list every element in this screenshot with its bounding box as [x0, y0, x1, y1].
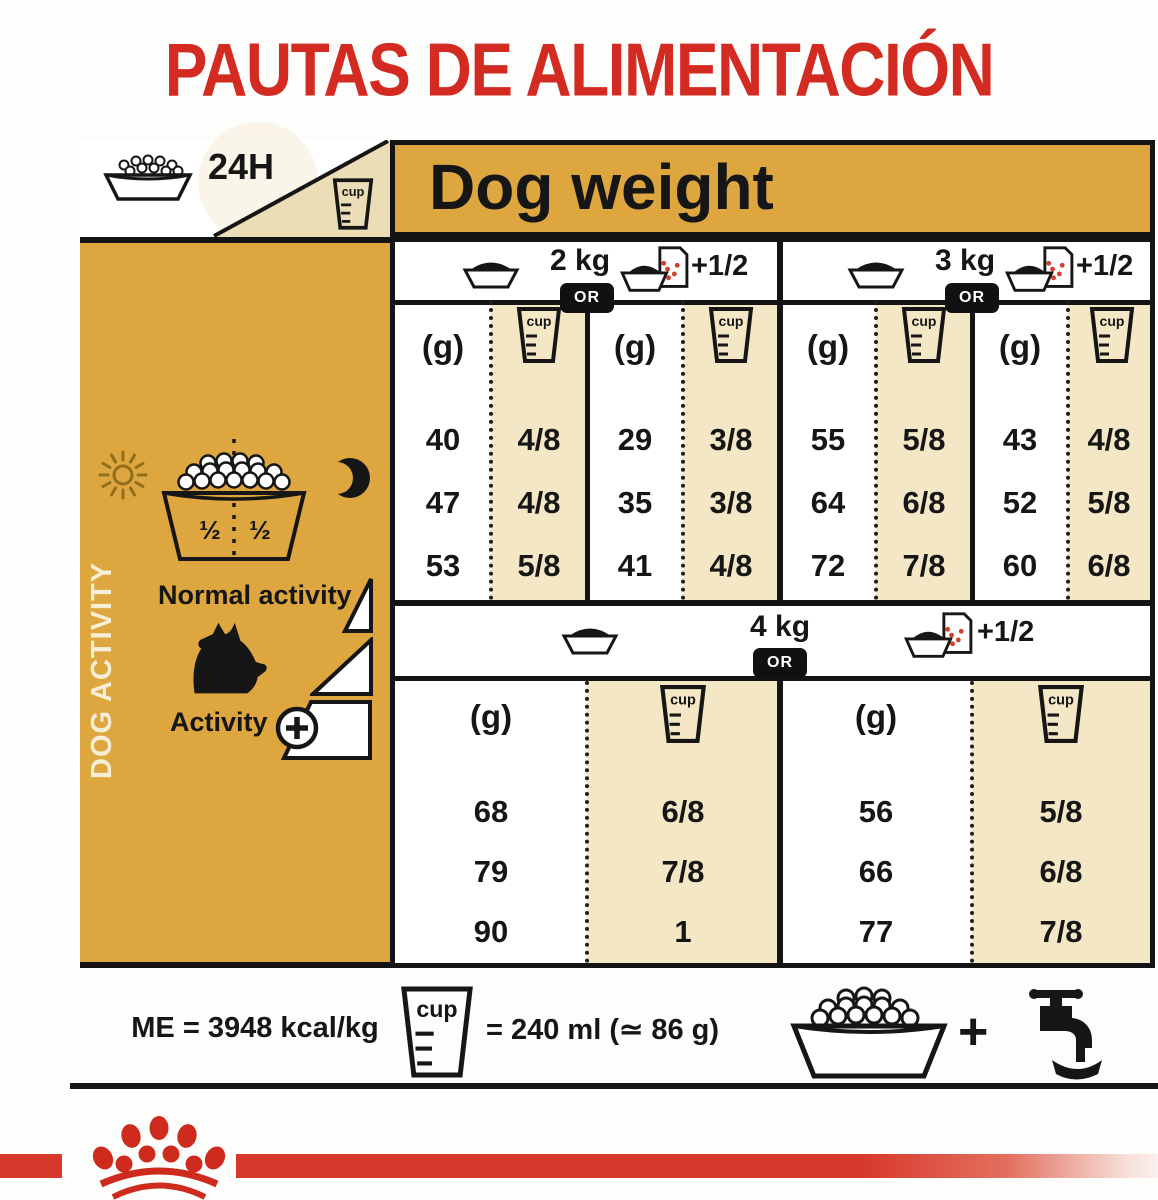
cup-label: cup: [342, 184, 365, 199]
bowl-icon: [560, 620, 620, 656]
value-cell: 5/8: [972, 794, 1150, 830]
cup-label: cup: [912, 313, 937, 329]
value-cell: 4/8: [491, 485, 587, 521]
kibble-bowl-icon: [94, 152, 202, 204]
activity-label: Activity: [170, 707, 268, 738]
cup-label: cup: [670, 693, 696, 709]
value-cell: 60: [972, 548, 1068, 584]
cup-icon-large: cup: [394, 984, 480, 1080]
value-cell: 53: [395, 548, 491, 584]
value-cell: 1: [587, 914, 779, 950]
grams-header: (g): [587, 328, 683, 366]
value-cell: 79: [395, 854, 587, 890]
cup-equivalence-label: = 240 ml (≃ 86 g): [486, 1012, 719, 1047]
cup-label: cup: [1048, 693, 1074, 709]
cup-icon: cup: [516, 306, 562, 364]
cup-icon: cup: [1037, 684, 1085, 744]
dog-weight-header: Dog weight: [390, 140, 1155, 237]
value-cell: 56: [780, 794, 972, 830]
me-kcal-label: ME = 3948 kcal/kg: [105, 1012, 405, 1045]
feeding-guide-page: PAUTAS DE ALIMENTACIÓN 24H cup Dog weigh…: [0, 0, 1158, 1200]
value-cell: 64: [780, 485, 876, 521]
value-cell: 72: [780, 548, 876, 584]
dog-activity-vertical-label: DOG ACTIVITY: [86, 558, 132, 782]
value-cell: 6/8: [587, 794, 779, 830]
value-cell: 5/8: [491, 548, 587, 584]
day-night-bowl-icon: ½ ½: [148, 435, 320, 575]
bowl-icon: [461, 254, 521, 290]
moon-icon: [328, 453, 370, 503]
value-cell: 5/8: [876, 422, 972, 458]
grams-header: (g): [780, 328, 876, 366]
value-cell: 5/8: [1068, 485, 1150, 521]
page-title: PAUTAS DE ALIMENTACIÓN: [0, 26, 1158, 113]
value-cell: 52: [972, 485, 1068, 521]
divider: [395, 300, 1150, 305]
normal-activity-label: Normal activity: [158, 580, 352, 611]
plus-circle-icon: [273, 704, 321, 752]
dog-silhouette-icon: [186, 614, 272, 704]
sun-icon: [96, 448, 150, 502]
cup-label: cup: [719, 313, 744, 329]
cup-label: cup: [1100, 313, 1125, 329]
value-cell: 77: [780, 914, 972, 950]
value-cell: 55: [780, 422, 876, 458]
value-cell: 90: [395, 914, 587, 950]
bowl-and-pouch-icon: [1004, 244, 1078, 300]
value-cell: 40: [395, 422, 491, 458]
cup-icon: cup: [1089, 306, 1135, 364]
bowl-and-pouch-icon: [619, 244, 693, 300]
plus-half-label: +1/2: [977, 616, 1034, 649]
divider: [70, 1083, 1158, 1089]
feeding-table: 2 kg OR +1/2 3 kg OR: [390, 237, 1155, 968]
plus-sign: +: [958, 1002, 988, 1062]
value-cell: 66: [780, 854, 972, 890]
or-badge: OR: [945, 283, 999, 313]
weight-label: 4 kg: [710, 610, 850, 644]
grams-header: (g): [972, 328, 1068, 366]
cup-icon: cup: [659, 684, 707, 744]
grams-header: (g): [780, 698, 972, 736]
value-cell: 4/8: [491, 422, 587, 458]
cup-label: cup: [527, 313, 552, 329]
plus-half-label: +1/2: [1076, 250, 1133, 283]
half-portion-left: ½: [199, 515, 221, 545]
activity-level-small-triangle: [342, 576, 374, 634]
or-badge: OR: [753, 648, 807, 678]
value-cell: 3/8: [683, 422, 779, 458]
header-corner-cell: 24H cup: [80, 140, 390, 237]
value-cell: 7/8: [876, 548, 972, 584]
value-cell: 4/8: [683, 548, 779, 584]
bowl-and-pouch-icon: [903, 610, 977, 666]
weight-group-header-3kg: 3 kg OR +1/2: [780, 242, 1150, 300]
weight-group-header-4kg: 4 kg OR +1/2: [395, 606, 1150, 676]
dog-weight-label: Dog weight: [395, 145, 1150, 230]
grams-header: (g): [395, 698, 587, 736]
value-cell: 41: [587, 548, 683, 584]
value-cell: 6/8: [972, 854, 1150, 890]
cup-label: cup: [416, 996, 457, 1022]
cup-icon: cup: [708, 306, 754, 364]
value-cell: 29: [587, 422, 683, 458]
royal-canin-crown-logo: [86, 1110, 232, 1200]
hours-label: 24H: [208, 146, 274, 188]
activity-level-medium-triangle: [310, 637, 374, 697]
water-faucet-icon: [1006, 984, 1106, 1084]
grams-header: (g): [395, 328, 491, 366]
value-cell: 6/8: [876, 485, 972, 521]
value-cell: 43: [972, 422, 1068, 458]
value-cell: 47: [395, 485, 491, 521]
value-cell: 68: [395, 794, 587, 830]
value-cell: 6/8: [1068, 548, 1150, 584]
or-badge: OR: [560, 283, 614, 313]
value-cell: 3/8: [683, 485, 779, 521]
weight-group-header-2kg: 2 kg OR +1/2: [395, 242, 780, 300]
dog-activity-sidebar: ½ ½ DOG ACTIVITY Normal activity Activit…: [80, 237, 390, 968]
half-portion-right: ½: [249, 515, 271, 545]
cup-icon: cup: [332, 177, 374, 231]
value-cell: 7/8: [972, 914, 1150, 950]
cup-icon: cup: [901, 306, 947, 364]
value-cell: 35: [587, 485, 683, 521]
plus-half-label: +1/2: [691, 250, 748, 283]
bowl-icon: [846, 254, 906, 290]
kibble-bowl-icon-large: [776, 986, 962, 1082]
value-cell: 4/8: [1068, 422, 1150, 458]
value-cell: 7/8: [587, 854, 779, 890]
